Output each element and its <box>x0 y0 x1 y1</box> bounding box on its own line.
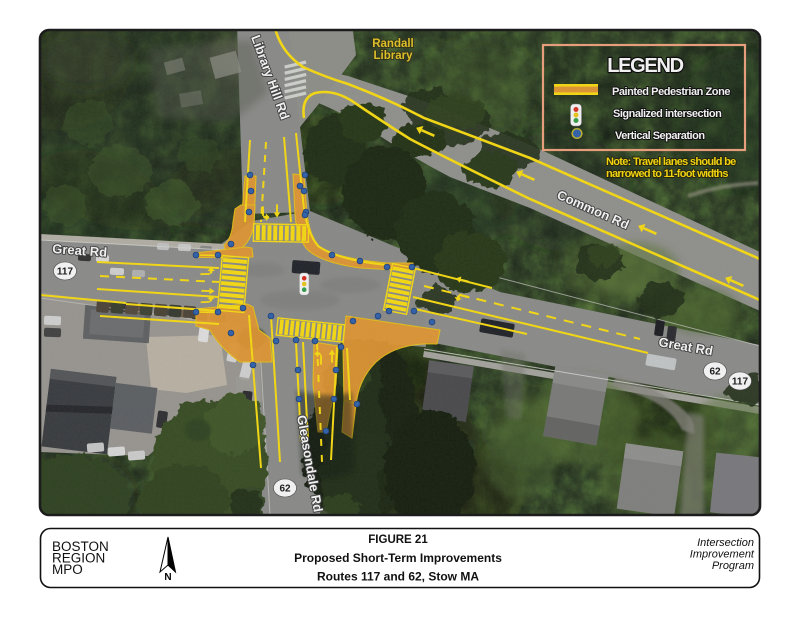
svg-text:Improvement: Improvement <box>690 549 755 561</box>
svg-text:FIGURE 21: FIGURE 21 <box>368 534 428 546</box>
svg-text:MPO: MPO <box>52 562 83 577</box>
svg-text:N: N <box>164 572 171 583</box>
svg-text:Program: Program <box>712 560 754 572</box>
svg-text:Routes 117 and 62, Stow MA: Routes 117 and 62, Stow MA <box>317 570 479 584</box>
svg-text:Intersection: Intersection <box>697 537 754 549</box>
svg-text:Proposed Short-Term Improvemen: Proposed Short-Term Improvements <box>294 551 502 565</box>
